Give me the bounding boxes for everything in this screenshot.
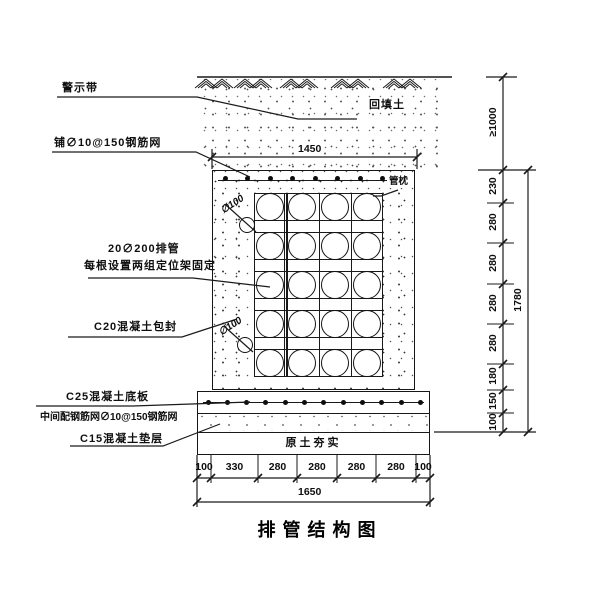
label-warning-tape: 警示带 [62,82,98,95]
label-backfill: 回填土 [367,99,407,112]
dim-tick [412,474,420,482]
label-encasement: C20混凝土包封 [94,321,177,334]
pipe-circle [321,349,349,377]
drain-pipe-circle-bottom [237,337,253,353]
dim-tick [499,239,507,247]
dim-tick [426,498,434,506]
drawing-title: 排管结构图 [210,516,430,542]
grid-post [286,193,287,377]
pipe-circle [256,232,284,260]
dim-tick [193,474,201,482]
dim-bottom-segment: 280 [260,461,296,473]
dim-cover: ≥1000 [487,87,499,157]
dim-tick [254,474,262,482]
dim-tick [524,166,532,174]
dim-tick [524,428,532,436]
label-pipe-cradle: 管枕 [387,177,410,188]
label-top-mesh: 铺∅10@150钢筋网 [54,137,161,150]
pipe-circle [288,232,316,260]
pipe-grid [254,193,383,377]
dim-tick [293,474,301,482]
dim-bottom-segment: 100 [405,461,441,473]
dim-tick [499,360,507,368]
rebar-dot-slab [302,400,307,405]
dim-right-segment: 100 [487,387,499,457]
dim-1450: 1450 [296,143,323,155]
dim-tick [499,386,507,394]
dim-1650: 1650 [298,486,321,498]
rebar-dot-top [358,176,363,181]
dim-tick [372,474,380,482]
dim-tick [499,320,507,328]
label-slab-mesh: 中间配钢筋网∅10@150钢筋网 [40,412,178,424]
dim-bottom-segment: 280 [299,461,335,473]
rebar-dot-slab [399,400,404,405]
dim-bottom-segment: 330 [217,461,253,473]
rebar-dot-slab [360,400,365,405]
dim-tick [193,498,201,506]
label-cushion: C15混凝土垫层 [80,433,163,446]
cushion-soil-divider [197,432,430,433]
pipe-circle [353,232,381,260]
label-pipes-1: 20∅200排管 [108,243,180,256]
cushion-texture [199,415,428,431]
grid-post [351,193,352,377]
pipe-circle [288,310,316,338]
pipe-circle [321,310,349,338]
dim-tick [426,474,434,482]
pipe-circle [288,349,316,377]
pipe-circle [256,271,284,299]
dim-bottom-segment: 280 [339,461,375,473]
dim-tick [499,73,507,81]
pipe-circle [321,193,349,221]
pipe-circle [353,271,381,299]
rebar-dot-top [313,176,318,181]
grid-post [382,193,383,377]
rebar-dot-slab [341,400,346,405]
slab-cushion-divider [197,413,430,414]
dim-tick [499,409,507,417]
pipe-circle [256,310,284,338]
rebar-dot-top [223,176,228,181]
grid-post [284,193,285,377]
rebar-dot-top [380,176,385,181]
rebar-dot-top [290,176,295,181]
dim-1780: 1780 [512,265,524,335]
pipe-circle [353,349,381,377]
grid-post [319,193,320,377]
pipe-circle [321,271,349,299]
dim-tick [333,474,341,482]
pipe-circle [353,310,381,338]
pipe-circle [256,349,284,377]
pipe-circle [288,271,316,299]
dim-tick [499,428,507,436]
drain-pipe-circle-top [239,217,255,233]
label-base-slab: C25混凝土底板 [66,391,149,404]
backfill-soil-texture [203,79,445,168]
label-pipes-2: 每根设置两组定位架固定 [84,260,216,273]
structural-drawing: 警示带 铺∅10@150钢筋网 20∅200排管 每根设置两组定位架固定 C20… [0,0,600,600]
label-compacted-soil: 原土夯实 [197,437,430,450]
rebar-dot-slab [225,400,230,405]
rebar-dot-slab [418,400,423,405]
dim-tick [207,474,215,482]
pipe-circle [353,193,381,221]
slab-mesh-line [203,402,424,403]
rebar-dot-top [268,176,273,181]
dim-tick [499,280,507,288]
rebar-dot-slab [283,400,288,405]
dim-tick [499,166,507,174]
dim-tick [499,199,507,207]
rebar-dot-slab [206,400,211,405]
pipe-circle [288,193,316,221]
pipe-circle [321,232,349,260]
pipe-circle [256,193,284,221]
rebar-dot-top [245,176,250,181]
rebar-dot-top [335,176,340,181]
